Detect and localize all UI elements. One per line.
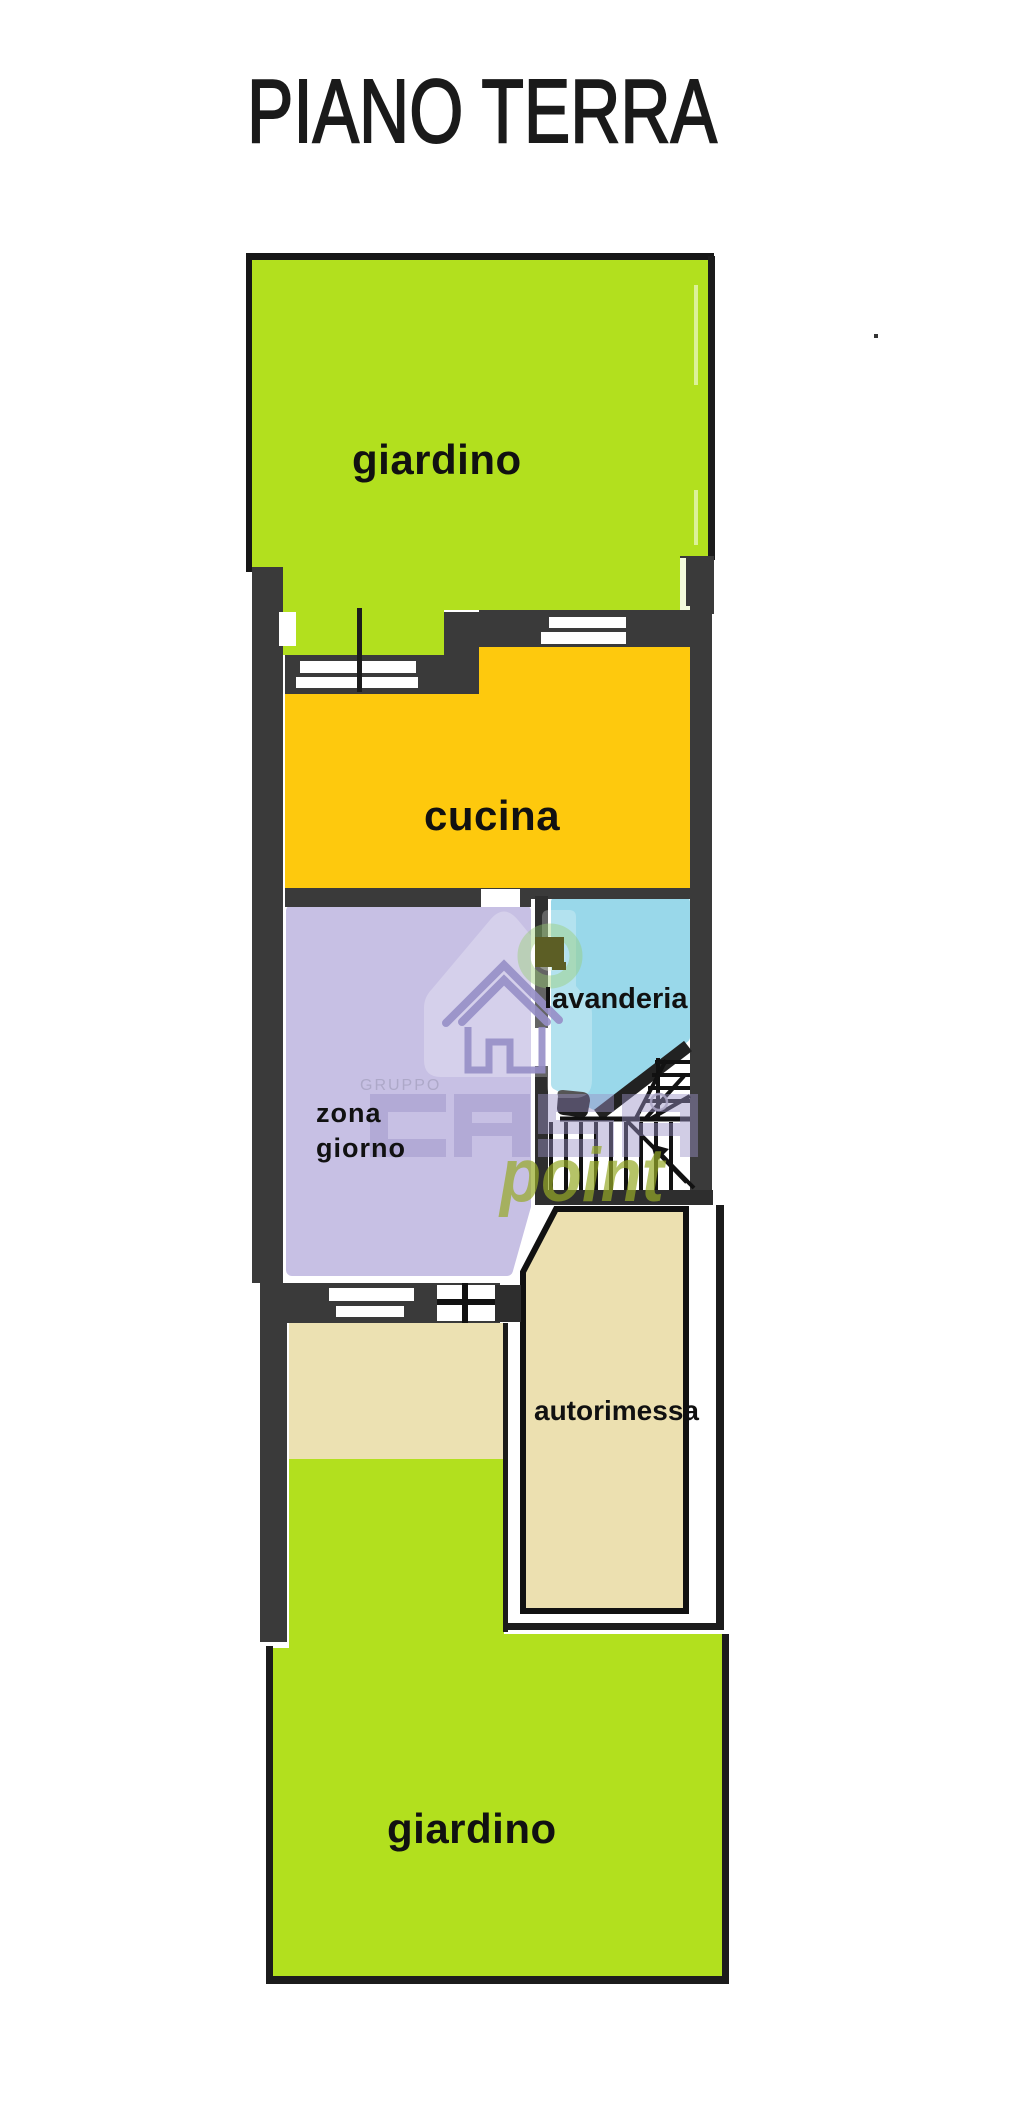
svg-text:cucina: cucina [424, 792, 560, 839]
svg-text:zona: zona [316, 1098, 382, 1128]
svg-text:giardino: giardino [352, 436, 522, 483]
svg-text:autorimessa: autorimessa [534, 1395, 699, 1426]
svg-text:lavanderia: lavanderia [544, 983, 688, 1015]
svg-text:GRUPPO: GRUPPO [360, 1077, 441, 1094]
svg-text:point: point [498, 1133, 666, 1218]
svg-text:giardino: giardino [387, 1805, 557, 1852]
svg-text:giorno: giorno [316, 1133, 406, 1163]
svg-text:PIANO TERRA: PIANO TERRA [247, 62, 717, 162]
